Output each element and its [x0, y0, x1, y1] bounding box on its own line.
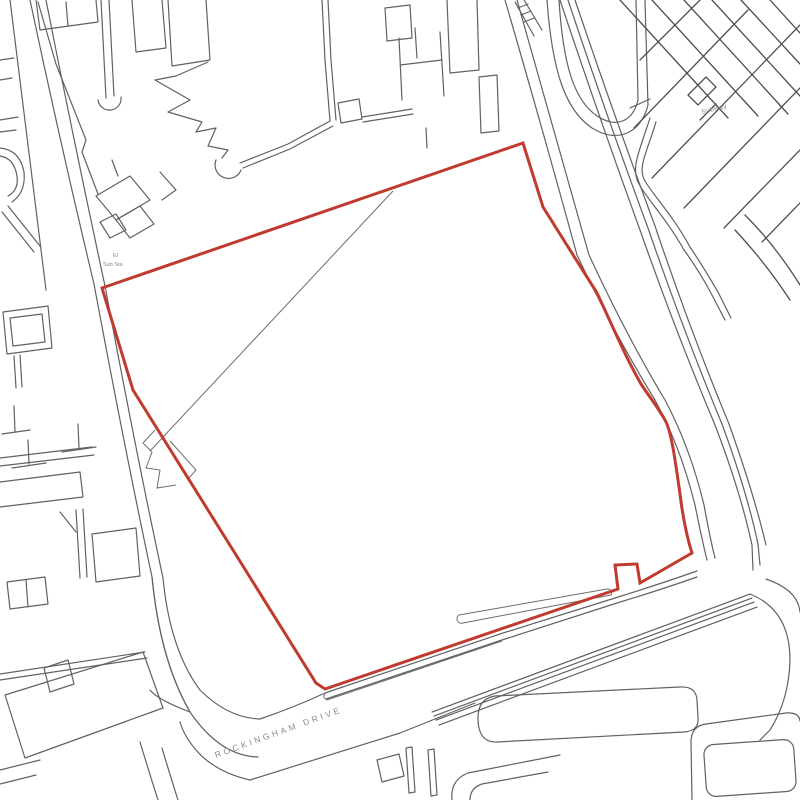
map-background: [0, 0, 800, 800]
substation-label-line1: El: [113, 253, 118, 259]
site-plan-canvas: ROCKINGHAM DRIVE Subway El Sub Sta: [0, 0, 800, 800]
site-plan: ROCKINGHAM DRIVE Subway El Sub Sta: [0, 0, 800, 800]
substation-label-line2: Sub Sta: [103, 262, 124, 268]
